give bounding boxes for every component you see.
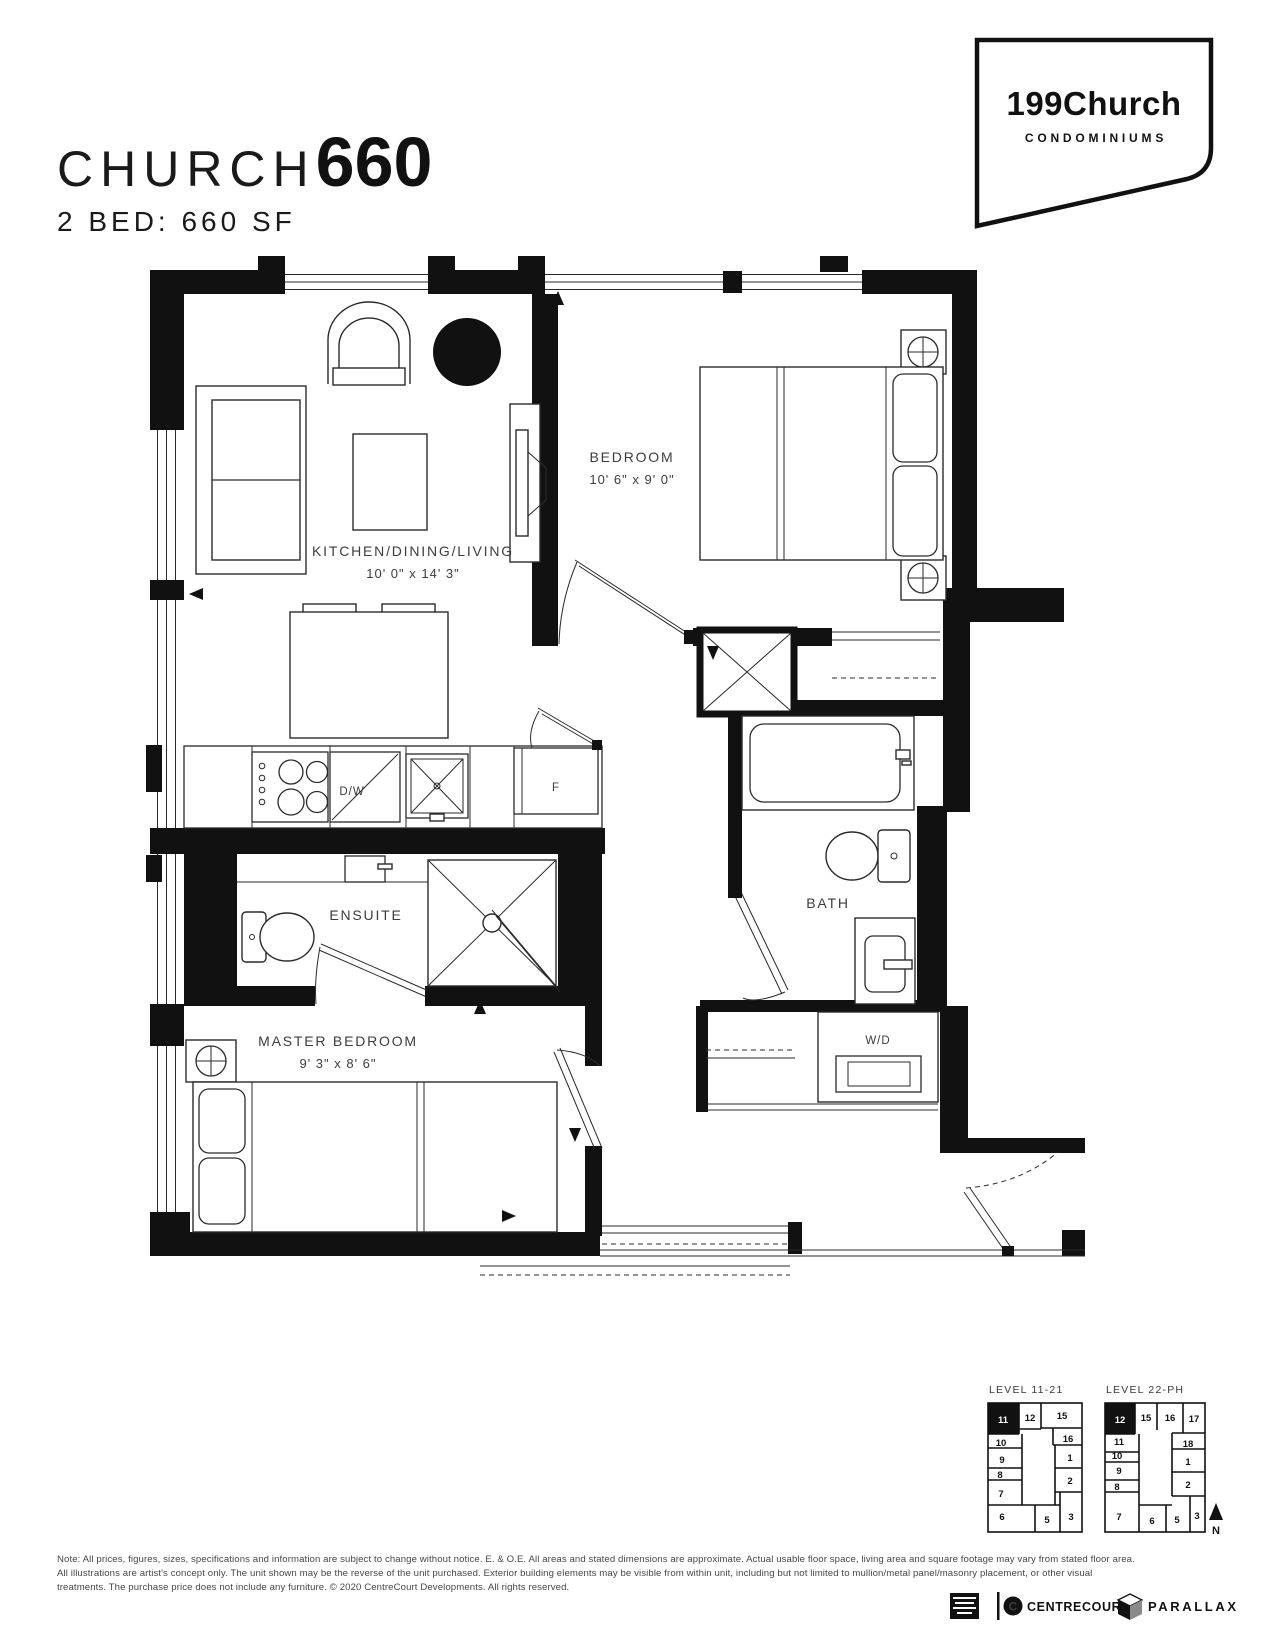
kp1-u6: 6 (999, 1512, 1004, 1523)
keyplan-level-11-21: LEVEL 11-21 11 12 15 16 1 2 3 5 6 7 8 9 … (988, 1384, 1082, 1532)
brand-logo-tagline: CONDOMINIUMS (1025, 131, 1167, 145)
dims-kitchen: 10' 0" x 14' 3" (366, 566, 460, 581)
keyplan2-title: LEVEL 22-PH (1106, 1384, 1184, 1396)
kp2-u16: 16 (1165, 1413, 1176, 1424)
bathtub-icon (742, 716, 914, 810)
master-nightstand-icon (186, 1040, 236, 1082)
disclaimer-line-3: treatments. The purchase price does not … (57, 1581, 1232, 1595)
kp1-u1: 1 (1067, 1453, 1073, 1464)
centrecourt-logo-icon: C (1004, 1597, 1023, 1616)
label-kitchen: KITCHEN/DINING/LIVING (312, 543, 514, 559)
kp2-u17: 17 (1189, 1414, 1200, 1425)
disclaimer-line-1: Note: All prices, figures, sizes, specif… (57, 1553, 1232, 1567)
shaft-box (700, 630, 794, 714)
round-table-icon (433, 318, 501, 386)
kp1-u5: 5 (1044, 1515, 1050, 1526)
kitchen-counter (184, 746, 602, 828)
kp1-u7: 7 (998, 1489, 1003, 1500)
centrecourt-wordmark: CENTRECOURT (1027, 1600, 1129, 1614)
ensuite-toilet-icon (242, 912, 314, 962)
kp1-u9: 9 (999, 1455, 1004, 1466)
label-fridge: F (552, 782, 560, 794)
dims-bedroom: 10' 6" x 9' 0" (589, 472, 674, 487)
kp2-u5: 5 (1174, 1515, 1180, 1526)
dining-table-icon (353, 434, 427, 530)
fridge-icon (514, 748, 598, 814)
kp2-u12: 12 (1115, 1415, 1126, 1426)
label-bath: BATH (806, 895, 850, 911)
kp1-u11: 11 (998, 1415, 1009, 1426)
armchair-icon (328, 302, 410, 385)
kp2-u15: 15 (1141, 1413, 1152, 1424)
bath-room (742, 716, 915, 1004)
kp2-u18: 18 (1183, 1439, 1194, 1450)
kp2-u6: 6 (1149, 1516, 1154, 1527)
parallax-logo-icon (1118, 1594, 1142, 1620)
bath-toilet-icon (826, 830, 910, 882)
disclaimer-line-2: All illustrations are artist's concept o… (57, 1567, 1232, 1581)
kp1-u10: 10 (996, 1438, 1007, 1449)
label-bedroom: BEDROOM (590, 449, 675, 465)
parallax-wordmark: PARALLAX (1148, 1599, 1239, 1614)
kp1-u2: 2 (1067, 1476, 1072, 1487)
brand-logo-name: 199Church (1006, 85, 1181, 122)
svg-text:C: C (1009, 1600, 1018, 1614)
divider (997, 1592, 1000, 1620)
kp2-u8: 8 (1114, 1482, 1119, 1493)
label-ensuite: ENSUITE (329, 907, 402, 923)
north-label: N (1212, 1525, 1220, 1537)
floorplan-page: CHURCH660 2 BED: 660 SF 199Church CONDOM… (0, 0, 1275, 1650)
kp1-u3: 3 (1068, 1512, 1073, 1523)
sofa-icon (196, 386, 306, 574)
award-badge-icon (950, 1593, 979, 1619)
kp2-u3: 3 (1194, 1511, 1199, 1522)
kp2-u11: 11 (1114, 1437, 1125, 1448)
label-dishwasher: D/W (339, 786, 364, 798)
kp1-u12: 12 (1025, 1413, 1036, 1424)
ensuite-sink-icon (345, 856, 392, 882)
keyplan1-title: LEVEL 11-21 (989, 1384, 1064, 1396)
bedroom-closet (832, 632, 940, 678)
kitchen-sink-icon (406, 754, 468, 821)
kp1-u8: 8 (997, 1470, 1002, 1481)
kp2-u7: 7 (1116, 1512, 1121, 1523)
cooktop-icon (252, 752, 328, 822)
bedroom-bed-icon (700, 367, 943, 560)
kitchen-island-icon (290, 604, 448, 738)
kp2-u10: 10 (1112, 1451, 1123, 1462)
keyplan-level-22-ph: LEVEL 22-PH 12 15 16 17 18 1 2 3 5 6 7 8… (1105, 1384, 1205, 1532)
footer-logos: C CENTRECOURT PARALLAX (950, 1592, 1239, 1620)
disclaimer: Note: All prices, figures, sizes, specif… (57, 1553, 1232, 1595)
shower-icon (428, 860, 556, 986)
north-arrow-icon: N (1209, 1503, 1223, 1537)
kp1-u15: 15 (1057, 1411, 1068, 1422)
floor-plan-drawing: 199Church CONDOMINIUMS (0, 0, 1275, 1650)
kp2-u9: 9 (1116, 1466, 1121, 1477)
kp2-u1: 1 (1185, 1457, 1191, 1468)
label-master: MASTER BEDROOM (258, 1033, 418, 1049)
kp1-u16: 16 (1063, 1434, 1074, 1445)
tv-console-icon (510, 404, 546, 562)
brand-logo-box: 199Church CONDOMINIUMS (977, 40, 1211, 226)
laundry-area (706, 1012, 938, 1110)
floor-plan: KITCHEN/DINING/LIVING 10' 0" x 14' 3" BE… (146, 256, 1085, 1275)
kp2-u2: 2 (1185, 1480, 1190, 1491)
dims-master: 9' 3" x 8' 6" (299, 1056, 376, 1071)
label-washer-dryer: W/D (865, 1035, 890, 1047)
bath-vanity-icon (855, 918, 915, 1004)
master-bed-icon (193, 1082, 557, 1232)
